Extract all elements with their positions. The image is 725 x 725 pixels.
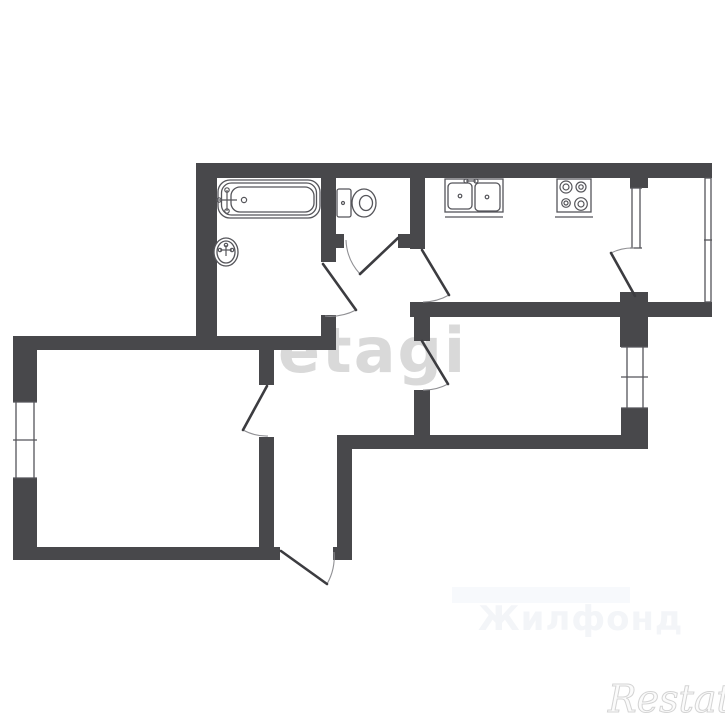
room1-door-leaf <box>243 386 267 430</box>
room2-door-leaf <box>422 341 448 384</box>
room1-bottom-wall <box>13 547 280 560</box>
room1-door-arc <box>243 430 268 436</box>
hall-right-wall <box>337 449 352 547</box>
kitchen-door-arc <box>423 295 449 302</box>
bathroom-left-wall <box>196 163 217 350</box>
wc-bottom-wall-right <box>398 234 410 248</box>
wc-kitchen-wall <box>410 178 425 249</box>
room2-bottom-wall <box>337 435 648 449</box>
entry-wall-block <box>333 547 352 560</box>
room1-right-wall-lower <box>259 437 274 547</box>
room2-door-arc <box>423 384 448 390</box>
hall-room2-wall-lower <box>414 390 430 435</box>
room1-left-wall-upper <box>13 336 37 402</box>
bathroom-door-leaf <box>323 264 356 310</box>
bathroom-right-wall-lower <box>321 315 336 336</box>
kitchen-window-pillar <box>630 178 648 188</box>
wc-bottom-wall-left <box>321 234 344 248</box>
kitchen-door-leaf <box>422 250 449 295</box>
mid-wall <box>13 336 336 350</box>
hall-room2-wall-upper <box>414 317 430 341</box>
kitchen-sink <box>445 179 503 212</box>
room2-right-wall-lower <box>621 408 648 435</box>
floor-plan <box>0 0 725 725</box>
bathroom-wc-wall <box>321 178 336 262</box>
balcony-door-arc <box>611 248 634 253</box>
wc-door-arc <box>346 240 360 274</box>
floor-plan-canvas: etagi Жилфонд Restate <box>0 0 725 725</box>
balcony-pillar <box>620 292 648 347</box>
entrance-door-leaf <box>281 551 327 584</box>
kitchen-bottom-wall <box>410 302 712 317</box>
room1-right-wall-upper <box>259 350 274 385</box>
top-wall <box>196 163 712 178</box>
wc-door-leaf <box>360 238 398 274</box>
balcony-door-leaf <box>611 253 635 296</box>
